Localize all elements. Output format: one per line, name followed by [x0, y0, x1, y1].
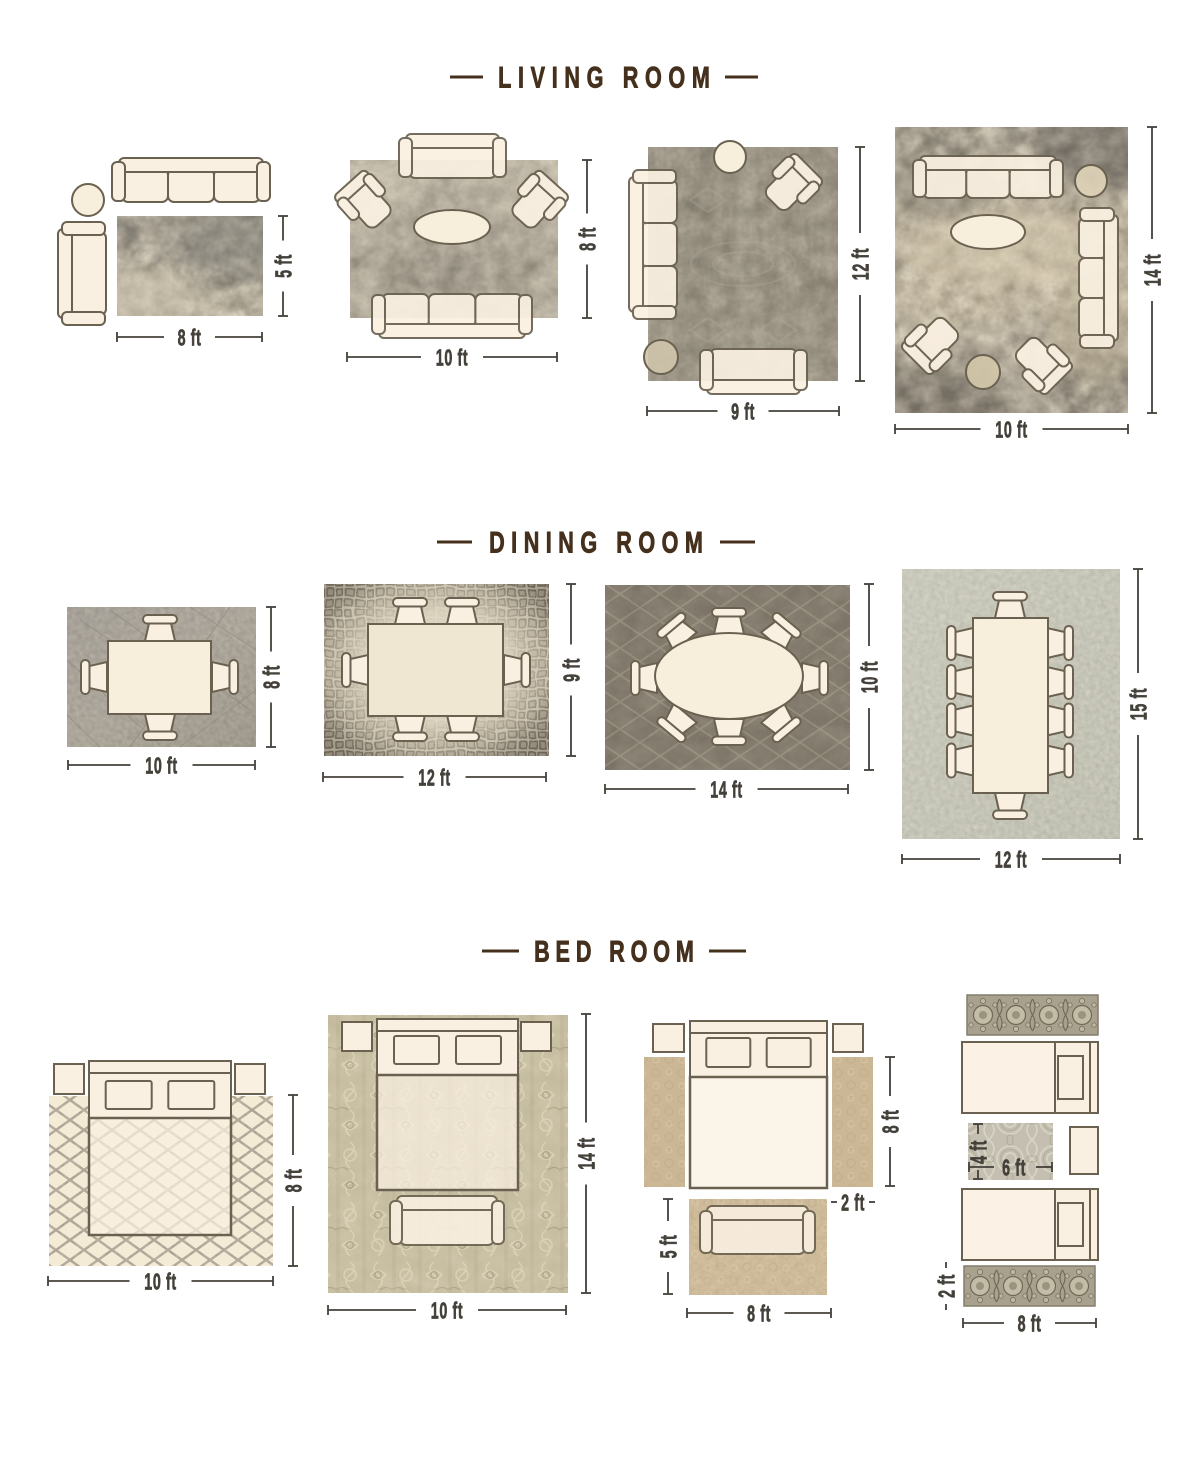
svg-text:9 ft: 9 ft [731, 400, 755, 425]
svg-text:LIVING ROOM: LIVING ROOM [498, 60, 710, 94]
svg-text:5 ft: 5 ft [272, 254, 297, 278]
svg-text:8 ft: 8 ft [178, 326, 202, 351]
svg-text:14 ft: 14 ft [575, 1137, 600, 1169]
svg-text:10 ft: 10 ft [995, 418, 1027, 443]
svg-text:8 ft: 8 ft [879, 1110, 904, 1134]
svg-text:6 ft: 6 ft [1002, 1156, 1026, 1181]
svg-text:12 ft: 12 ft [849, 248, 874, 280]
svg-text:5 ft: 5 ft [657, 1235, 682, 1259]
svg-text:14 ft: 14 ft [710, 778, 742, 803]
svg-text:4 ft: 4 ft [967, 1140, 992, 1164]
svg-text:10 ft: 10 ft [858, 661, 883, 693]
svg-text:2 ft: 2 ft [935, 1274, 960, 1298]
svg-text:8 ft: 8 ft [576, 227, 601, 251]
svg-text:BED ROOM: BED ROOM [534, 934, 694, 968]
svg-text:12 ft: 12 ft [418, 766, 450, 791]
svg-text:12 ft: 12 ft [995, 848, 1027, 873]
svg-text:10 ft: 10 ft [436, 346, 468, 371]
svg-text:8 ft: 8 ft [747, 1302, 771, 1327]
svg-text:2 ft: 2 ft [841, 1191, 865, 1216]
svg-text:10 ft: 10 ft [145, 754, 177, 779]
svg-text:8 ft: 8 ft [260, 665, 285, 689]
svg-text:10 ft: 10 ft [431, 1299, 463, 1324]
svg-text:10 ft: 10 ft [144, 1270, 176, 1295]
svg-text:8 ft: 8 ft [1018, 1312, 1042, 1337]
svg-text:DINING ROOM: DINING ROOM [489, 525, 703, 559]
svg-text:8 ft: 8 ft [282, 1169, 307, 1193]
svg-text:15 ft: 15 ft [1127, 688, 1152, 720]
svg-text:14 ft: 14 ft [1141, 254, 1166, 286]
svg-text:9 ft: 9 ft [560, 658, 585, 682]
